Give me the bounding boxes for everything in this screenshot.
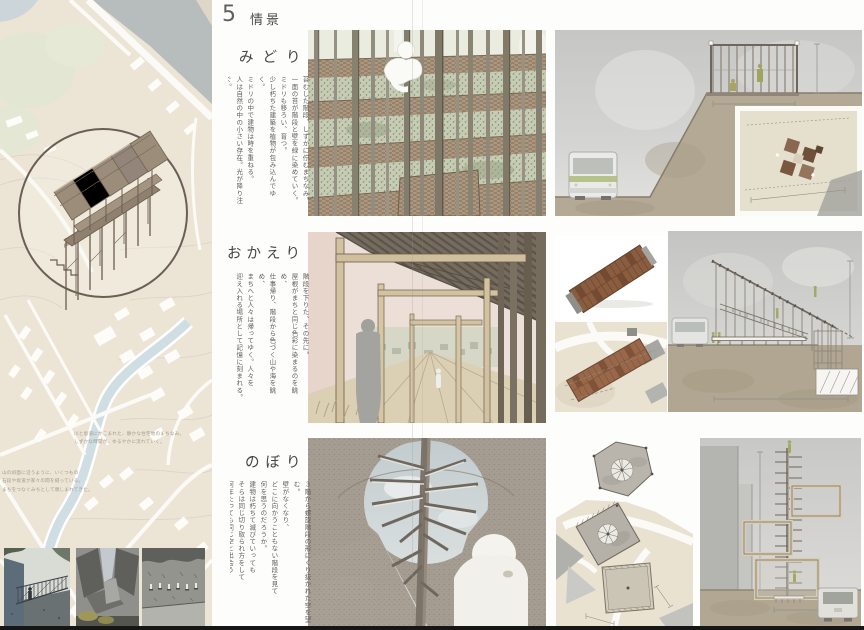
person-silhouette — [356, 319, 381, 423]
map-note-line: 石段や坂道が家々の間を縫っている。 — [2, 478, 93, 486]
vertical-text-line: 人は自然の中の小さい存在。光が降り注ぐ。 — [228, 76, 244, 208]
site-map — [0, 0, 212, 630]
photo-hillside-statues — [142, 548, 205, 627]
drawing-roof-axon — [555, 236, 667, 320]
drawing-roof-siteplan — [555, 322, 667, 412]
vertical-text-line: 迎え入れる場所として記憶に刻まれる。 — [233, 273, 244, 403]
vertical-text-line: 建物は朽ちて滅びていっても — [246, 481, 257, 627]
distant-person — [436, 369, 441, 389]
section-text-okaeri: 階段を下りた、その先に。 屋根がまちと同じ色彩に染まるのを眺め、 仕事帰り、階段… — [228, 273, 310, 403]
van — [569, 152, 617, 200]
bottom-black-bar — [0, 626, 864, 630]
van — [818, 588, 858, 622]
vertical-text-line: 壁がなくなり、 — [279, 481, 290, 627]
vertical-text-line: 少し朽ちた建築を植物が包み込んでゆく。 — [255, 76, 277, 208]
vertical-text-line: 屋根がまちと同じ色彩に染まるのを眺め、 — [277, 273, 299, 403]
plan-level-1 — [602, 563, 654, 613]
render-midori-road-section — [555, 30, 862, 216]
photo-bridge — [4, 548, 70, 627]
map-annotation-1: 川と坂道にかこまれた、静かな住宅地のまちなみ。 しずかな時間が、ゆるやかに流れて… — [74, 431, 184, 448]
photo-cliff — [76, 548, 139, 627]
vertical-text-line: 何を思うのだろうか。 — [257, 481, 268, 627]
render-okaeri-corridor — [308, 232, 546, 423]
section-title-nobori: のぼり — [245, 451, 307, 472]
vertical-text-line: ミドリも移ろい、育つ。 — [277, 76, 288, 208]
inset-plan — [735, 106, 862, 216]
vertical-text-line: どこに向かうこともない階段を見て — [268, 481, 279, 627]
map-note-line: まちをつなぐみちとして親しまれてきた。 — [2, 487, 93, 495]
vertical-text-line: 階段を下りた、その先に。 — [299, 273, 310, 403]
render-nobori-tower-elevation — [700, 438, 861, 627]
section-number: 5 — [222, 2, 236, 27]
render-okaeri-elevation — [668, 231, 862, 412]
page-title: 情景 — [250, 9, 282, 28]
section-text-nobori: ３階から螺旋階段の形にくり抜かれた空を望む。 壁がなくなり、 どこに向かうことも… — [230, 481, 312, 627]
presentation-board: 川と坂道にかこまれた、静かな住宅地のまちなみ。 しずかな時間が、ゆるやかに流れて… — [0, 0, 864, 630]
map-note-line: しずかな時間が、ゆるやかに流れていく。 — [74, 439, 184, 447]
render-midori-forest-steps — [308, 30, 546, 216]
render-nobori-spiral-sky — [308, 438, 546, 627]
vertical-text-line: 苔むした階段、しずかに佇むまちなみ。 — [299, 76, 310, 208]
drawing-nobori-plans — [556, 438, 693, 627]
map-note-line: 川と坂道にかこまれた、静かな住宅地のまちなみ。 — [74, 431, 184, 439]
section-title-okaeri: おかえり — [227, 242, 305, 263]
background-wall — [700, 446, 738, 590]
vertical-text-line: 仕事帰り、階段から色づく山や海を眺め、 — [255, 273, 277, 403]
vertical-text-line: まちへと人々は帰ってゆく。人々を — [244, 273, 255, 403]
vertical-text-line: ミドリの中で建物は時を重ねる。 — [244, 76, 255, 208]
vertical-text-line: ３階から螺旋階段の形にくり抜かれた空を望む。 — [290, 481, 312, 627]
person-silhouette — [28, 587, 32, 600]
map-annotation-2: 山の斜面に沿うように、いくつもの 石段や坂道が家々の間を縫っている。 まちをつな… — [2, 470, 93, 495]
vertical-text-line: 一面の苔が階段と壁を緑に染めていく。 — [288, 76, 299, 208]
section-title-midori: みどり — [239, 46, 310, 67]
van — [672, 318, 708, 347]
map-note-line: 山の斜面に沿うように、いくつもの — [2, 470, 93, 478]
section-text-midori: 苔むした階段、しずかに佇むまちなみ。 一面の苔が階段と壁を緑に染めていく。 ミド… — [228, 76, 310, 208]
vertical-text-line: そらは同じ切り取られ方をして — [235, 481, 246, 627]
vertical-text-line: 何年たっても同じ空と出会う — [230, 481, 235, 627]
paper-fold-line — [412, 0, 413, 627]
site-map-panel: 川と坂道にかこまれた、静かな住宅地のまちなみ。 しずかな時間が、ゆるやかに流れて… — [0, 0, 212, 630]
paper-fold-line — [422, 0, 423, 627]
